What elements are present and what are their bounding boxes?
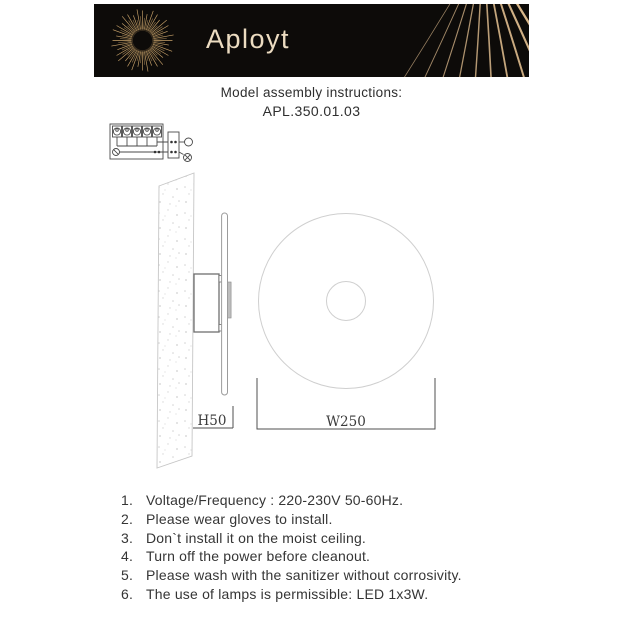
item-number: 4. (121, 547, 146, 566)
instruction-item-1: 1. Voltage/Frequency : 220-230V 50-60Hz. (121, 491, 462, 510)
item-text: Please wash with the sanitizer without c… (146, 566, 462, 585)
dimension-w250-label: W250 (326, 414, 366, 430)
lamp-side-view (222, 213, 232, 395)
item-text: Don`t install it on the moist ceiling. (146, 529, 366, 548)
terminal-wiring-diagram (110, 124, 193, 162)
item-text: Voltage/Frequency : 220-230V 50-60Hz. (146, 491, 403, 510)
dimension-h50: H50 (193, 406, 233, 429)
screw-terminals (113, 126, 162, 137)
item-number: 5. (121, 566, 146, 585)
instruction-item-6: 6. The use of lamps is permissible: LED … (121, 585, 462, 604)
item-text: Turn off the power before cleanout. (146, 547, 370, 566)
instruction-list: 1. Voltage/Frequency : 220-230V 50-60Hz.… (121, 491, 462, 604)
instruction-item-3: 3. Don`t install it on the moist ceiling… (121, 529, 462, 548)
instruction-item-5: 5. Please wash with the sanitizer withou… (121, 566, 462, 585)
screw-icon (184, 154, 192, 162)
item-number: 3. (121, 529, 146, 548)
item-text: The use of lamps is permissible: LED 1x3… (146, 585, 428, 604)
lamp-front-view (259, 214, 434, 389)
dimension-h50-label: H50 (198, 413, 227, 429)
instruction-item-2: 2. Please wear gloves to install. (121, 510, 462, 529)
item-number: 1. (121, 491, 146, 510)
item-text: Please wear gloves to install. (146, 510, 333, 529)
item-number: 2. (121, 510, 146, 529)
item-number: 6. (121, 585, 146, 604)
wire-end-icon (185, 138, 193, 146)
mounting-box (194, 274, 222, 332)
wall-panel (157, 173, 194, 468)
instruction-sheet: Aployt Model assembly instructions: APL.… (0, 0, 623, 623)
instruction-item-4: 4. Turn off the power before cleanout. (121, 547, 462, 566)
